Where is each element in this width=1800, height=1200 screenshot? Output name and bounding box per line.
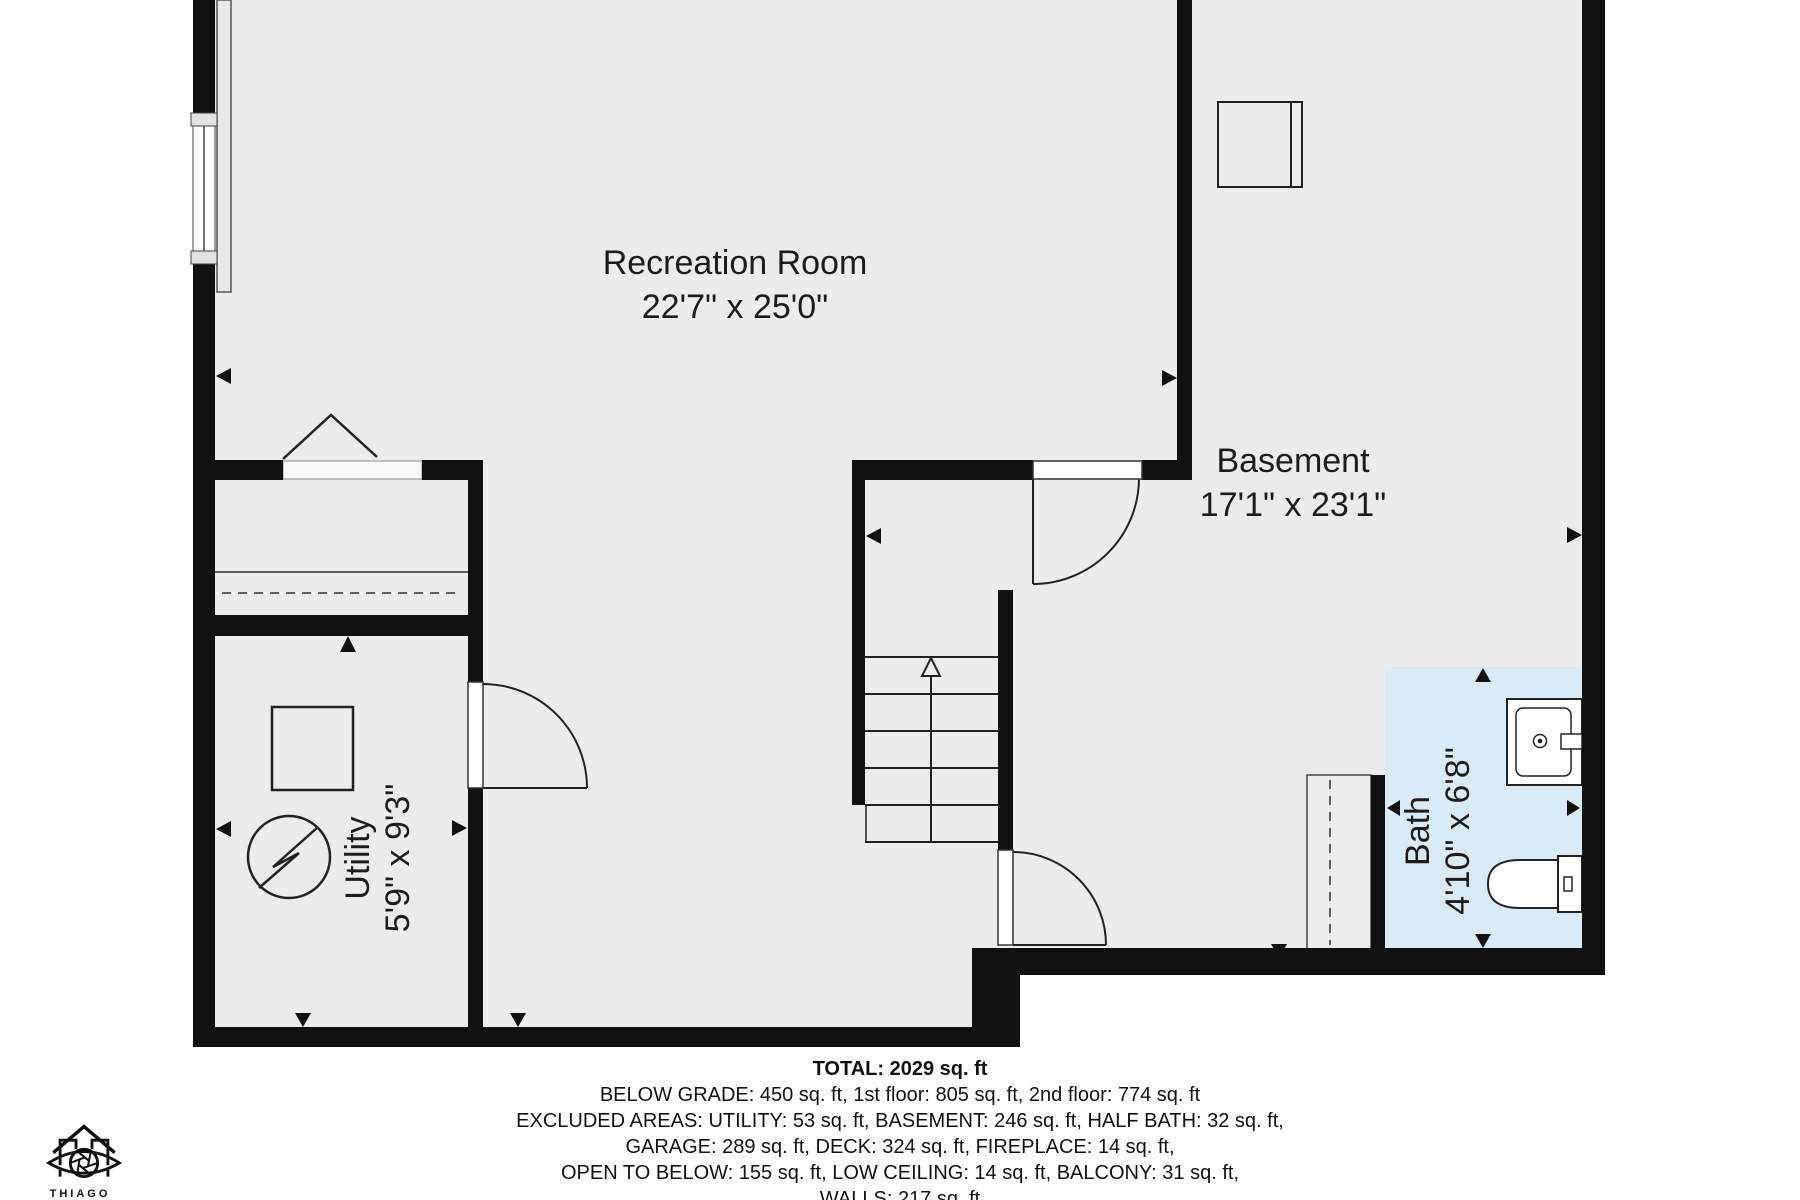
- electrical-panel: [272, 707, 353, 790]
- summary-line: GARAGE: 289 sq. ft, DECK: 324 sq. ft, FI…: [0, 1134, 1800, 1160]
- wall-recroom-south-a: [852, 460, 1033, 480]
- wall-step-column: [972, 948, 1020, 1047]
- door-frame-utility: [468, 682, 483, 788]
- window: [191, 113, 217, 264]
- wall-bottom-left: [193, 1027, 1020, 1047]
- wall-right: [1582, 0, 1605, 975]
- wall-bottom-right: [1020, 948, 1605, 975]
- wall-utility-right-a: [468, 480, 483, 682]
- wall-utility-top-b: [422, 460, 483, 480]
- door-frame-stairs: [998, 850, 1013, 945]
- sink: [1507, 699, 1582, 785]
- room-dimensions: 17'1" x 23'1": [1093, 483, 1493, 527]
- thiago-logo-icon: [44, 1122, 124, 1188]
- wall-bath-left: [1371, 775, 1385, 950]
- recreation-room-label: Recreation Room 22'7" x 25'0": [535, 241, 935, 329]
- room-dimensions: 5'9" x 9'3": [378, 784, 418, 933]
- summary-line: WALLS: 217 sq. ft: [0, 1186, 1800, 1200]
- summary-line: OPEN TO BELOW: 155 sq. ft, LOW CEILING: …: [0, 1160, 1800, 1186]
- summary-total: TOTAL: 2029 sq. ft: [0, 1056, 1800, 1082]
- utility-label: Utility 5'9" x 9'3": [338, 784, 418, 933]
- room-name: Bath: [1398, 747, 1438, 915]
- room-name: Recreation Room: [535, 241, 935, 285]
- room-name: Basement: [1093, 439, 1493, 483]
- wall-stair-right: [998, 590, 1013, 850]
- summary-line: BELOW GRADE: 450 sq. ft, 1st floor: 805 …: [0, 1082, 1800, 1108]
- floor-plan-drawing: [0, 0, 1800, 1200]
- support-post: [1218, 102, 1302, 187]
- toilet: [1488, 856, 1582, 912]
- wall-utility-top-a: [215, 460, 283, 480]
- area-summary: TOTAL: 2029 sq. ft BELOW GRADE: 450 sq. …: [0, 1056, 1800, 1200]
- duct-unit: [1307, 775, 1371, 950]
- floor-plan-page: Recreation Room 22'7" x 25'0" Basement 1…: [0, 0, 1800, 1200]
- summary-line: EXCLUDED AREAS: UTILITY: 53 sq. ft, BASE…: [0, 1108, 1800, 1134]
- bath-label: Bath 4'10" x 6'8": [1398, 747, 1478, 915]
- low-ceiling-strip: [217, 0, 231, 292]
- basement-label: Basement 17'1" x 23'1": [1093, 439, 1493, 527]
- wall-utility-mid: [215, 615, 483, 636]
- logo-text: THIAGO: [40, 1188, 120, 1200]
- wall-utility-right-b: [468, 788, 483, 1028]
- wall-stair-left: [852, 460, 865, 805]
- room-dimensions: 4'10" x 6'8": [1438, 747, 1478, 915]
- room-dimensions: 22'7" x 25'0": [535, 285, 935, 329]
- room-name: Utility: [338, 784, 378, 933]
- wall-recroom-right: [1177, 0, 1192, 480]
